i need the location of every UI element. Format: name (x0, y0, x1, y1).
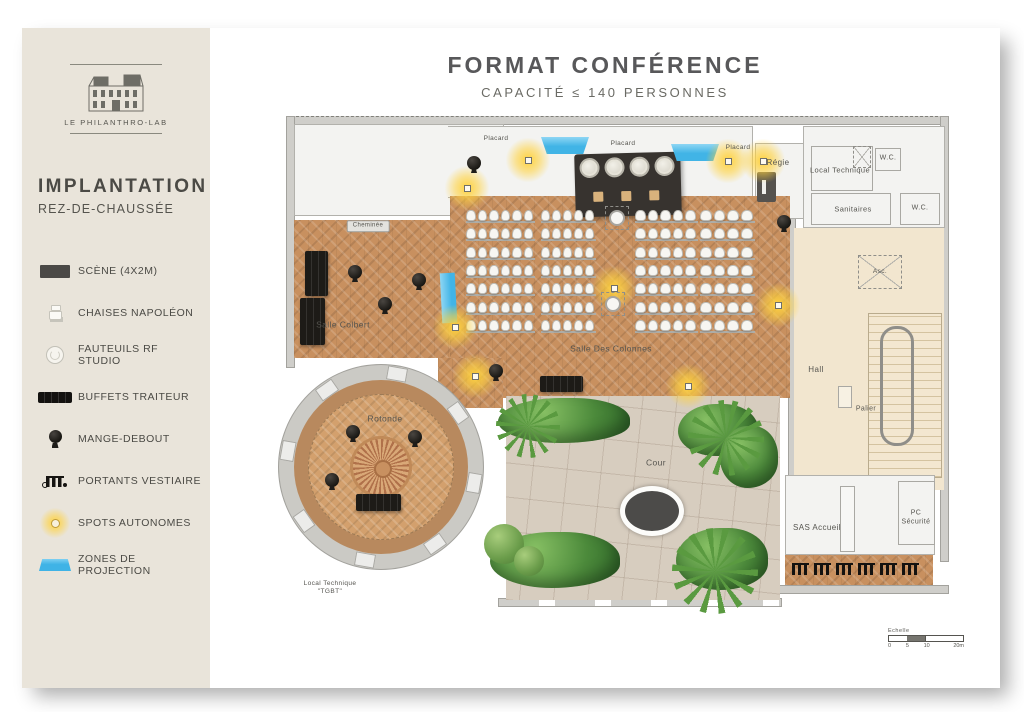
napoleon-chair (648, 210, 659, 221)
chair-row (700, 320, 755, 333)
stage-side-table (649, 190, 659, 200)
chair-row (541, 302, 596, 315)
coat-rack (814, 563, 831, 575)
legend-item-zones: ZONES DE PROJECTION (32, 544, 204, 586)
standing-table (467, 156, 481, 170)
napoleon-chair (501, 247, 511, 258)
napoleon-chair (524, 210, 534, 221)
chair-row (700, 228, 755, 241)
napoleon-chair (585, 228, 594, 239)
napoleon-chair (478, 302, 488, 313)
tree-round-small (514, 546, 544, 576)
legend-item-fauteuils: FAUTEUILS RF STUDIO (32, 334, 204, 376)
napoleon-chair (563, 283, 572, 294)
legend-label: PORTANTS VESTIAIRE (78, 475, 201, 487)
napoleon-chair (466, 247, 476, 258)
napoleon-chair (700, 228, 712, 239)
legend-item-buffets: BUFFETS TRAITEUR (32, 376, 204, 418)
napoleon-chair (585, 320, 594, 331)
chair-row (700, 302, 755, 315)
napoleon-chair-icon (32, 305, 78, 322)
room-label: Asc. (873, 268, 887, 276)
napoleon-chair (673, 302, 684, 313)
legend-item-chaises: CHAISES NAPOLÉON (32, 292, 204, 334)
napoleon-chair (489, 210, 499, 221)
napoleon-chair (478, 247, 488, 258)
sas-cabinet (840, 486, 855, 552)
napoleon-chair (635, 283, 646, 294)
buffet-table (356, 494, 401, 511)
napoleon-chair (714, 210, 726, 221)
napoleon-chair (489, 302, 499, 313)
napoleon-chair (660, 302, 671, 313)
napoleon-chair (585, 210, 594, 221)
room-label: SAS Accueil (793, 523, 841, 533)
napoleon-chair (541, 210, 550, 221)
napoleon-chair (714, 228, 726, 239)
napoleon-chair (660, 265, 671, 276)
room-label: Sanitaires (834, 204, 871, 213)
napoleon-chair (673, 247, 684, 258)
spot-light (666, 364, 710, 408)
logo: LE PHILANTHRO-LAB (22, 58, 210, 140)
napoleon-chair (714, 247, 726, 258)
room-label: Régie (767, 158, 790, 168)
napoleon-chair (574, 247, 583, 258)
napoleon-chair (660, 228, 671, 239)
scale-ticks: 0 5 10 20m (888, 643, 964, 649)
napoleon-chair (541, 320, 550, 331)
napoleon-chair (685, 283, 696, 294)
page-subtitle: REZ-DE-CHAUSSÉE (38, 202, 174, 216)
stage-icon (32, 265, 78, 278)
rf-armchair (654, 156, 675, 177)
napoleon-chair (714, 283, 726, 294)
napoleon-chair (714, 265, 726, 276)
napoleon-chair (727, 265, 739, 276)
standing-table (777, 215, 791, 229)
buffet-table (305, 251, 328, 296)
napoleon-chair (660, 247, 671, 258)
palm-top-left (496, 394, 560, 458)
format-title: FORMAT CONFÉRENCE (210, 52, 1000, 79)
coat-rack (858, 563, 875, 575)
napoleon-chair (552, 228, 561, 239)
palm-bottom-right (672, 528, 758, 614)
coat-rack (880, 563, 897, 575)
chair-row (635, 283, 698, 296)
chair-row (466, 210, 535, 223)
chair-row (541, 265, 596, 278)
napoleon-chair (524, 320, 534, 331)
napoleon-chair (512, 302, 522, 313)
room-label: Cheminée (347, 220, 390, 232)
napoleon-chair (552, 265, 561, 276)
buffet-icon (32, 392, 78, 403)
stage-side-table (621, 191, 631, 201)
napoleon-chair (541, 265, 550, 276)
chair-row (466, 283, 535, 296)
stair-rail (880, 326, 914, 446)
chair-row (466, 265, 535, 278)
legend-label: SPOTS AUTONOMES (78, 517, 191, 529)
room-label: PC Sécurité (902, 509, 931, 527)
hall-desk (838, 386, 852, 408)
room-label: Salle Colbert (316, 320, 370, 331)
napoleon-chair (727, 228, 739, 239)
napoleon-chair (673, 320, 684, 331)
legend-item-portants: PORTANTS VESTIAIRE (32, 460, 204, 502)
logo-rule-top (70, 64, 162, 65)
napoleon-chair (700, 320, 712, 331)
napoleon-chair (512, 320, 522, 331)
room-label: W.C. (912, 205, 929, 214)
napoleon-chair (512, 283, 522, 294)
napoleon-chair (478, 228, 488, 239)
napoleon-chair (489, 283, 499, 294)
legend-item-spots: SPOTS AUTONOMES (32, 502, 204, 544)
chair-row (541, 210, 596, 223)
annex-room (388, 563, 458, 603)
napoleon-chair (501, 210, 511, 221)
legend-label: BUFFETS TRAITEUR (78, 391, 189, 403)
napoleon-chair (478, 265, 488, 276)
napoleon-chair (563, 228, 572, 239)
napoleon-chair (563, 265, 572, 276)
napoleon-chair (552, 283, 561, 294)
napoleon-chair (466, 228, 476, 239)
napoleon-chair (501, 302, 511, 313)
napoleon-chair (685, 320, 696, 331)
napoleon-chair (700, 283, 712, 294)
napoleon-chair (727, 210, 739, 221)
spot-light (433, 305, 477, 349)
chair-row (541, 283, 596, 296)
poster-card: LE PHILANTHRO-LAB IMPLANTATION REZ-DE-CH… (22, 28, 1000, 688)
napoleon-chair (501, 228, 511, 239)
napoleon-chair (700, 210, 712, 221)
room-label: Palier (856, 406, 876, 415)
room-label: Cour (646, 458, 666, 469)
room-label: Local Technique "TGBT" (304, 580, 357, 596)
napoleon-chair (466, 210, 476, 221)
rf-armchair (604, 157, 625, 178)
coat-rack-icon (32, 474, 78, 489)
napoleon-chair (660, 283, 671, 294)
scale-tick: 5 (906, 643, 924, 649)
room-label: Placard (484, 135, 509, 143)
napoleon-chair (489, 247, 499, 258)
napoleon-chair (635, 210, 646, 221)
napoleon-chair (501, 265, 511, 276)
chair-row (635, 302, 698, 315)
rf-armchair (579, 158, 600, 179)
room-label: W.C. (880, 155, 897, 164)
napoleon-chair (541, 302, 550, 313)
napoleon-chair (574, 228, 583, 239)
palm-top-right (688, 400, 764, 476)
column (605, 296, 621, 312)
napoleon-chair (635, 320, 646, 331)
napoleon-chair (466, 265, 476, 276)
chair-row (700, 265, 755, 278)
napoleon-chair (673, 210, 684, 221)
stage-side-table (593, 192, 603, 202)
napoleon-chair (512, 228, 522, 239)
napoleon-chair (727, 320, 739, 331)
legend-label: SCÈNE (4X2M) (78, 265, 158, 277)
napoleon-chair (727, 283, 739, 294)
napoleon-chair (552, 302, 561, 313)
napoleon-chair (685, 265, 696, 276)
napoleon-chair (501, 320, 511, 331)
chair-row (466, 247, 535, 260)
napoleon-chair (648, 283, 659, 294)
chair-row (541, 320, 596, 333)
napoleon-chair (574, 210, 583, 221)
rotonde-pier (354, 551, 376, 568)
napoleon-chair (700, 265, 712, 276)
napoleon-chair (478, 283, 488, 294)
napoleon-chair (700, 302, 712, 313)
napoleon-chair (660, 210, 671, 221)
header: FORMAT CONFÉRENCE CAPACITÉ ≤ 140 PERSONN… (210, 28, 1000, 100)
room-label: Salle Des Colonnes (570, 344, 652, 355)
standing-table (412, 273, 426, 287)
napoleon-chair (585, 247, 594, 258)
napoleon-chair (563, 320, 572, 331)
napoleon-chair (512, 210, 522, 221)
sidebar: LE PHILANTHRO-LAB IMPLANTATION REZ-DE-CH… (22, 28, 210, 688)
standing-table (408, 430, 422, 444)
napoleon-chair (685, 228, 696, 239)
napoleon-chair (673, 228, 684, 239)
napoleon-chair (524, 228, 534, 239)
page-title: IMPLANTATION (38, 176, 208, 198)
column (609, 210, 625, 226)
chair-row (700, 283, 755, 296)
chair-row (635, 320, 698, 333)
chair-row (541, 247, 596, 260)
napoleon-chair (574, 265, 583, 276)
room-label: Placard (726, 144, 751, 152)
napoleon-chair (685, 210, 696, 221)
chair-row (700, 210, 755, 223)
napoleon-chair (541, 247, 550, 258)
standing-table (325, 473, 339, 487)
scale-tick: 10 (924, 643, 954, 649)
napoleon-chair (727, 247, 739, 258)
napoleon-chair (727, 302, 739, 313)
napoleon-chair (563, 210, 572, 221)
napoleon-chair (541, 228, 550, 239)
legend: SCÈNE (4X2M) CHAISES NAPOLÉON FAUTEUILS … (32, 250, 204, 586)
napoleon-chair (685, 302, 696, 313)
coat-rack (902, 563, 919, 575)
legend-label: FAUTEUILS RF STUDIO (78, 343, 204, 367)
chair-row (635, 265, 698, 278)
napoleon-chair (563, 302, 572, 313)
napoleon-chair (552, 210, 561, 221)
legend-label: CHAISES NAPOLÉON (78, 307, 193, 319)
napoleon-chair (714, 302, 726, 313)
napoleon-chair (524, 265, 534, 276)
napoleon-chair (489, 320, 499, 331)
buffet-table (540, 376, 583, 392)
napoleon-chair (478, 320, 488, 331)
napoleon-chair (563, 247, 572, 258)
napoleon-chair (660, 320, 671, 331)
napoleon-chair (552, 320, 561, 331)
spot-light (756, 283, 800, 327)
capacity-subtitle: CAPACITÉ ≤ 140 PERSONNES (210, 85, 1000, 100)
scale-tick: 20m (953, 643, 964, 649)
chair-row (635, 247, 698, 260)
napoleon-chair (741, 302, 753, 313)
napoleon-chair (685, 247, 696, 258)
floor-plan: PlacardPlacardPlacardRégieLocal Techniqu… (268, 108, 962, 623)
napoleon-chair (466, 283, 476, 294)
scale-label: Echelle (888, 628, 964, 634)
standing-table (378, 297, 392, 311)
napoleon-chair (635, 302, 646, 313)
standing-table-icon (32, 430, 78, 448)
chair-row (635, 228, 698, 241)
napoleon-chair (574, 320, 583, 331)
napoleon-chair (741, 320, 753, 331)
chair-row (700, 247, 755, 260)
legend-item-mange-debout: MANGE-DEBOUT (32, 418, 204, 460)
napoleon-chair (512, 247, 522, 258)
room-label: Rotonde (368, 414, 403, 425)
napoleon-chair (552, 247, 561, 258)
room-label: Placard (611, 140, 636, 148)
napoleon-chair (741, 283, 753, 294)
napoleon-chair (635, 247, 646, 258)
napoleon-chair (635, 265, 646, 276)
spot-light (445, 166, 489, 210)
logo-caption: LE PHILANTHRO-LAB (22, 118, 210, 127)
napoleon-chair (635, 228, 646, 239)
napoleon-chair (524, 283, 534, 294)
scale-tick: 0 (888, 643, 906, 649)
rotonde-pier (465, 472, 482, 494)
napoleon-chair (741, 247, 753, 258)
chair-row (541, 228, 596, 241)
projection-zone-icon (32, 559, 78, 571)
rf-armchair-icon (32, 346, 78, 364)
napoleon-chair (478, 210, 488, 221)
napoleon-chair (489, 265, 499, 276)
napoleon-chair (700, 247, 712, 258)
rotonde-medallion (350, 436, 412, 498)
napoleon-chair (524, 247, 534, 258)
napoleon-chair (541, 283, 550, 294)
napoleon-chair (501, 283, 511, 294)
coat-rack (792, 563, 809, 575)
spot-icon (32, 508, 78, 538)
standing-table (346, 425, 360, 439)
chair-row (466, 228, 535, 241)
legend-label: ZONES DE PROJECTION (78, 553, 204, 577)
rf-armchair (629, 156, 650, 177)
room-label: Hall (808, 365, 823, 375)
napoleon-chair (574, 283, 583, 294)
napoleon-chair (741, 265, 753, 276)
coat-rack (836, 563, 853, 575)
napoleon-chair (714, 320, 726, 331)
logo-rule-bottom (70, 133, 162, 134)
scale-bar-graphic (888, 635, 964, 642)
napoleon-chair (524, 302, 534, 313)
chair-row (635, 210, 698, 223)
napoleon-chair (741, 210, 753, 221)
wall-bottom-sas (768, 585, 949, 594)
napoleon-chair (512, 265, 522, 276)
legend-label: MANGE-DEBOUT (78, 433, 170, 445)
napoleon-chair (648, 265, 659, 276)
napoleon-chair (574, 302, 583, 313)
courtyard-oval (620, 486, 684, 536)
standing-table (489, 364, 503, 378)
napoleon-chair (648, 302, 659, 313)
napoleon-chair (489, 228, 499, 239)
napoleon-chair (673, 283, 684, 294)
napoleon-chair (673, 265, 684, 276)
napoleon-chair (648, 320, 659, 331)
napoleon-chair (741, 228, 753, 239)
spot-light (506, 138, 550, 182)
building-logo-icon (84, 71, 148, 113)
scale-bar: Echelle 0 5 10 20m (888, 628, 964, 649)
standing-table (348, 265, 362, 279)
napoleon-chair (648, 228, 659, 239)
legend-item-scene: SCÈNE (4X2M) (32, 250, 204, 292)
napoleon-chair (648, 247, 659, 258)
room-label: Local Technique (810, 165, 870, 174)
